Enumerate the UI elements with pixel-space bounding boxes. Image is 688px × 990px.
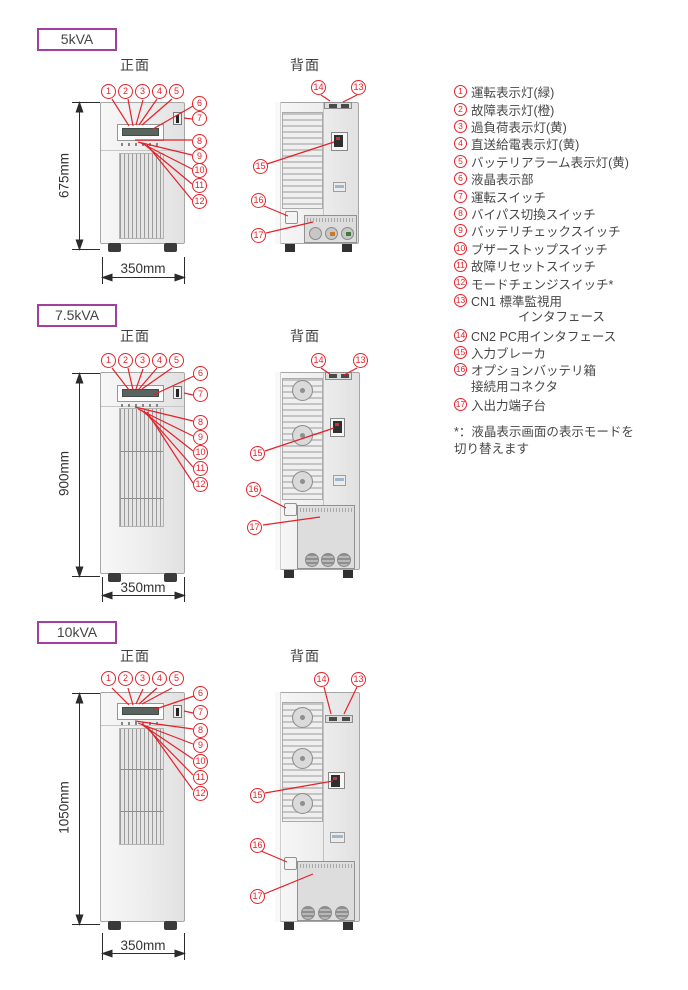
legend-num-4: 4	[454, 137, 467, 150]
callout-10: 10	[193, 754, 208, 769]
callout-8: 8	[193, 723, 208, 738]
callout-17: 17	[247, 520, 262, 535]
legend-item-14: 14CN2 PC用インタフェース	[454, 326, 688, 343]
callout-3: 3	[135, 671, 150, 686]
callout-17: 17	[250, 889, 265, 904]
callout-6: 6	[193, 366, 208, 381]
callout-14: 14	[314, 672, 329, 687]
legend-num-8: 8	[454, 207, 467, 220]
leader-lines	[112, 95, 357, 894]
legend-footnote: *：液晶表示画面の表示モードを 切り替えます	[454, 424, 688, 458]
callout-7: 7	[192, 111, 207, 126]
legend-num-17: 17	[454, 398, 467, 411]
callout-5: 5	[169, 84, 184, 99]
callout-11: 11	[193, 461, 208, 476]
legend-num-14: 14	[454, 329, 467, 342]
legend-label: モードチェンジスイッチ*	[471, 274, 613, 293]
legend-label: CN2 PC用インタフェース	[471, 326, 616, 345]
legend-item-11: 11故障リセットスイッチ	[454, 257, 688, 274]
callout-7: 7	[193, 705, 208, 720]
callout-2: 2	[118, 84, 133, 99]
callout-10: 10	[192, 163, 207, 178]
callout-15: 15	[250, 446, 265, 461]
callout-2: 2	[118, 671, 133, 686]
callout-15: 15	[250, 788, 265, 803]
legend-num-11: 11	[454, 259, 467, 272]
legend-item-10: 10ブザーストップスイッチ	[454, 240, 688, 257]
callout-1: 1	[101, 353, 116, 368]
callout-9: 9	[192, 149, 207, 164]
legend-num-9: 9	[454, 224, 467, 237]
legend-label: 液晶表示部	[471, 169, 534, 188]
legend-label: バッテリアラーム表示灯(黄)	[471, 152, 629, 171]
callout-12: 12	[192, 194, 207, 209]
legend-item-5: 5バッテリアラーム表示灯(黄)	[454, 153, 688, 170]
legend-label: 入力ブレーカ	[471, 343, 546, 362]
callout-16: 16	[246, 482, 261, 497]
callout-16: 16	[251, 193, 266, 208]
callout-11: 11	[193, 770, 208, 785]
legend-item-17: 17入出力端子台	[454, 396, 688, 413]
legend-num-7: 7	[454, 190, 467, 203]
legend-num-1: 1	[454, 85, 467, 98]
callout-14: 14	[311, 80, 326, 95]
callout-3: 3	[135, 84, 150, 99]
footnote-line-2: 切り替えます	[454, 441, 688, 458]
catalog-diagram-page: 5kVA 正面 背面 675mm 350mm 7	[0, 0, 688, 990]
legend-item-4: 4直送給電表示灯(黄)	[454, 135, 688, 152]
callout-9: 9	[193, 430, 208, 445]
callout-4: 4	[152, 671, 167, 686]
legend-item-13-line2: インタフェース	[454, 309, 688, 326]
legend-num-13: 13	[454, 294, 467, 307]
callout-14: 14	[311, 353, 326, 368]
legend-label: バッテリチェックスイッチ	[471, 221, 621, 240]
legend-item-3: 3過負荷表示灯(黄)	[454, 118, 688, 135]
callout-15: 15	[253, 159, 268, 174]
legend-num-15: 15	[454, 346, 467, 359]
legend-label: バイパス切換スイッチ	[471, 204, 596, 223]
callout-1: 1	[101, 671, 116, 686]
callout-6: 6	[193, 686, 208, 701]
legend-item-6: 6液晶表示部	[454, 170, 688, 187]
callout-7: 7	[193, 387, 208, 402]
callout-5: 5	[169, 353, 184, 368]
legend-label: オプションバッテリ箱	[471, 360, 596, 379]
legend-item-16-line2: 接続用コネクタ	[454, 379, 688, 396]
legend-item-9: 9バッテリチェックスイッチ	[454, 222, 688, 239]
callout-13: 13	[353, 353, 368, 368]
legend-num-10: 10	[454, 242, 467, 255]
callout-17: 17	[251, 228, 266, 243]
callout-16: 16	[250, 838, 265, 853]
callout-13: 13	[351, 80, 366, 95]
legend-item-1: 1運転表示灯(緑)	[454, 83, 688, 100]
legend-label: ブザーストップスイッチ	[471, 239, 608, 258]
legend-item-2: 2故障表示灯(橙)	[454, 100, 688, 117]
callout-4: 4	[152, 84, 167, 99]
legend-label: 故障表示灯(橙)	[471, 100, 554, 119]
legend-item-12: 12モードチェンジスイッチ*	[454, 274, 688, 291]
legend-label: 過負荷表示灯(黄)	[471, 117, 567, 136]
legend-item-8: 8バイパス切換スイッチ	[454, 205, 688, 222]
callout-9: 9	[193, 738, 208, 753]
callout-4: 4	[152, 353, 167, 368]
legend-num-5: 5	[454, 155, 467, 168]
callout-2: 2	[118, 353, 133, 368]
legend-item-7: 7運転スイッチ	[454, 187, 688, 204]
legend-label: CN1 標準監視用	[471, 291, 562, 310]
legend-label: 運転スイッチ	[471, 187, 546, 206]
dimension-arrows	[72, 103, 185, 961]
legend-label: 運転表示灯(緑)	[471, 82, 554, 101]
callout-11: 11	[192, 178, 207, 193]
legend-num-3: 3	[454, 120, 467, 133]
legend-item-13: 13CN1 標準監視用	[454, 292, 688, 309]
legend-num-16: 16	[454, 363, 467, 376]
legend-item-16: 16オプションバッテリ箱	[454, 361, 688, 378]
callout-8: 8	[192, 134, 207, 149]
legend-label: 直送給電表示灯(黄)	[471, 134, 579, 153]
legend-label: 故障リセットスイッチ	[471, 256, 596, 275]
footnote-line-1: *：液晶表示画面の表示モードを	[454, 424, 688, 441]
callout-12: 12	[193, 786, 208, 801]
callout-13: 13	[351, 672, 366, 687]
legend-num-6: 6	[454, 172, 467, 185]
legend-item-15: 15入力ブレーカ	[454, 344, 688, 361]
callout-12: 12	[193, 477, 208, 492]
callout-8: 8	[193, 415, 208, 430]
callout-1: 1	[101, 84, 116, 99]
legend-label: 入出力端子台	[471, 395, 546, 414]
callout-10: 10	[193, 445, 208, 460]
callout-3: 3	[135, 353, 150, 368]
legend-num-2: 2	[454, 103, 467, 116]
callout-6: 6	[192, 96, 207, 111]
legend-num-12: 12	[454, 276, 467, 289]
callout-5: 5	[169, 671, 184, 686]
legend: 1運転表示灯(緑) 2故障表示灯(橙) 3過負荷表示灯(黄) 4直送給電表示灯(…	[454, 83, 688, 458]
